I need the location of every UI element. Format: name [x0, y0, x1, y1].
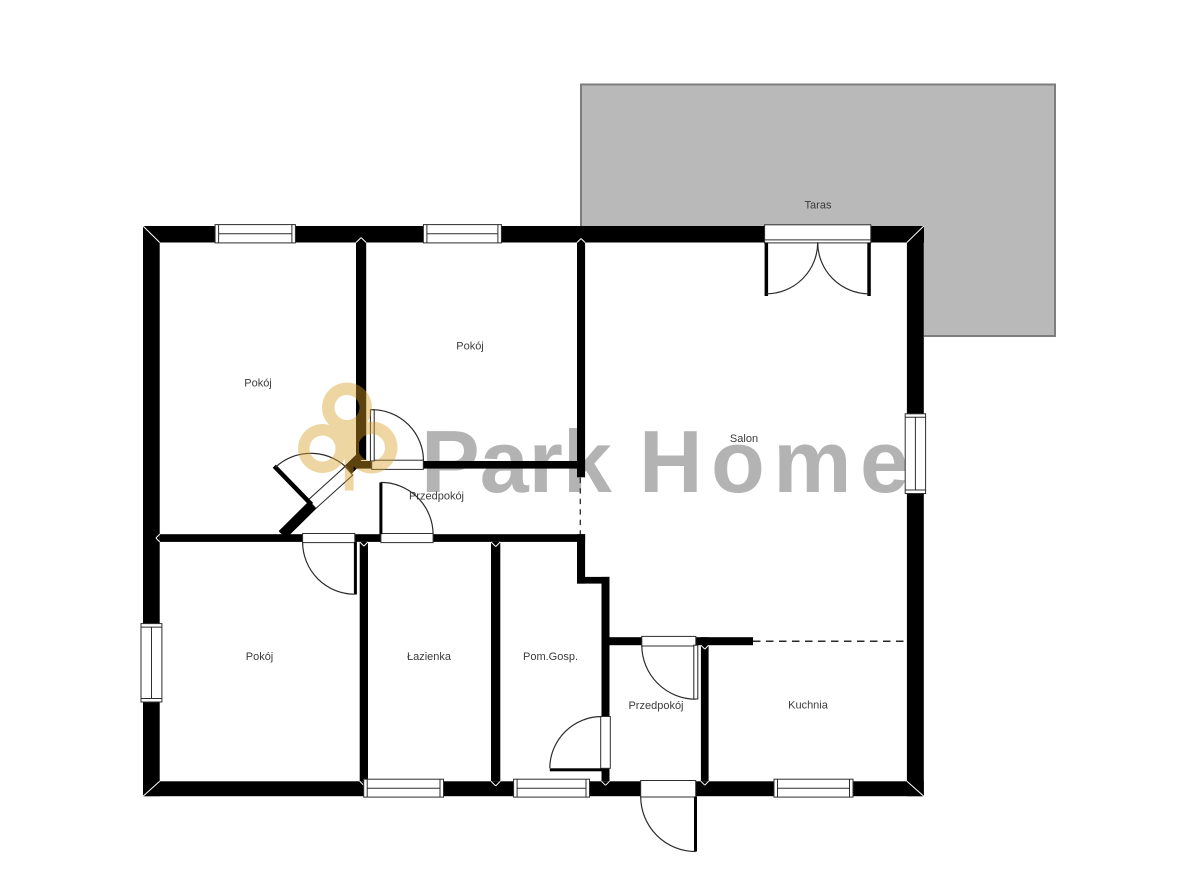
svg-text:Home: Home	[639, 412, 918, 511]
svg-text:Pokój: Pokój	[244, 378, 272, 390]
svg-text:Łazienka: Łazienka	[407, 651, 452, 663]
svg-text:Pom.Gosp.: Pom.Gosp.	[523, 651, 578, 663]
svg-text:Kuchnia: Kuchnia	[788, 700, 829, 712]
svg-text:Pokój: Pokój	[246, 651, 274, 663]
svg-text:Taras: Taras	[805, 200, 832, 212]
svg-text:Salon: Salon	[730, 433, 758, 445]
svg-text:Przedpokój: Przedpokój	[409, 491, 464, 503]
svg-text:Przedpokój: Przedpokój	[628, 700, 683, 712]
svg-text:Pokój: Pokój	[456, 341, 484, 353]
